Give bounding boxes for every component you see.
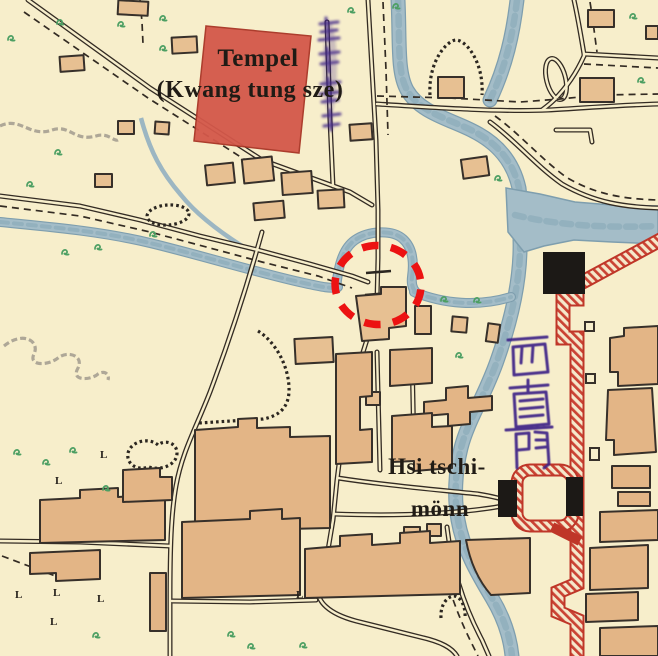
svg-text:L: L	[100, 449, 107, 461]
svg-text:L: L	[55, 475, 62, 487]
svg-text:L: L	[50, 616, 57, 628]
gate-tower	[566, 477, 583, 516]
historical-map-canvas: L L L L L L L	[0, 0, 658, 656]
svg-text:L: L	[15, 589, 22, 601]
gate-label-line2: mönn	[411, 496, 469, 521]
svg-text:L: L	[296, 589, 303, 601]
barbican-tower	[498, 480, 517, 517]
gate-label-line1: Hsi tschi-	[388, 454, 486, 479]
temple-label-line1: Tempel	[217, 45, 298, 72]
svg-text:L: L	[53, 587, 60, 599]
corner-tower	[543, 252, 585, 294]
temple-label-line2: (Kwang tung sze)	[157, 77, 344, 103]
map-svg: L L L L L L L	[0, 0, 658, 656]
svg-text:L: L	[97, 593, 104, 605]
